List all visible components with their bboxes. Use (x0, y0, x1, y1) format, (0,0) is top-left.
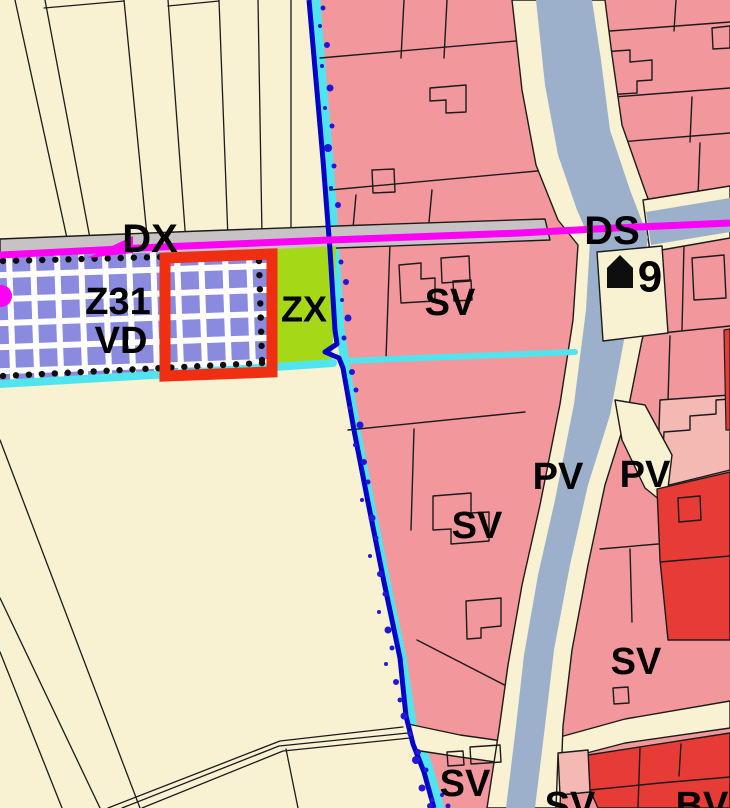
boundary-dot (340, 298, 344, 302)
strip-border-dot (258, 314, 264, 320)
strip-border-dot (52, 370, 58, 376)
strip-border-dot (116, 367, 122, 373)
boundary-dot (323, 106, 327, 110)
strip-border-dot (258, 329, 264, 335)
boundary-dot (349, 369, 355, 375)
map-label-ds: DS (584, 209, 640, 253)
boundary-dot (430, 798, 435, 803)
boundary-dot (385, 627, 392, 634)
boundary-dot (339, 260, 344, 265)
zoning-map[interactable]: DXDSZ31VDZXSV9PVPVSVSVSVSVBV (0, 0, 730, 808)
map-viewport[interactable]: DXDSZ31VDZXSV9PVPVSVSVSVSVBV (0, 0, 730, 808)
map-label-bv: BV (676, 785, 729, 808)
boundary-dot (318, 24, 322, 28)
boundary-dot (390, 646, 395, 651)
strip-border-dot (233, 361, 239, 367)
boundary-dot (383, 592, 388, 597)
map-label-sv: SV (611, 641, 662, 683)
strip-border-dot (142, 366, 148, 372)
boundary-dot (374, 536, 379, 541)
boundary-dot (357, 422, 364, 429)
strip-border-dot (13, 372, 19, 378)
boundary-dot (335, 202, 341, 208)
boundary-dot (384, 662, 388, 666)
strip-border-dot (257, 286, 263, 292)
map-label-sv: SV (452, 505, 503, 547)
boundary-dot (368, 554, 372, 558)
boundary-dot (354, 388, 359, 393)
boundary-dot (361, 459, 367, 465)
strip-border-dot (65, 370, 71, 376)
strip-border-dot (78, 369, 84, 375)
boundary-dot (408, 732, 413, 737)
boundary-dot (324, 42, 330, 48)
boundary-dot (412, 756, 420, 764)
boundary-dot (366, 480, 371, 485)
strip-border-dot (26, 372, 32, 378)
strip-border-dot (26, 257, 32, 263)
strip-border-dot (103, 368, 109, 374)
boundary-dot (342, 336, 347, 341)
strip-border-dot (256, 272, 262, 278)
map-label-sv: SV (545, 785, 596, 808)
strip-border-dot (52, 256, 58, 262)
strip-border-dot (220, 362, 226, 368)
boundary-dot (415, 749, 421, 755)
map-label-zx: ZX (281, 289, 327, 330)
boundary-dot (345, 315, 352, 322)
boundary-dot (320, 64, 324, 68)
boundary-dot (321, 6, 326, 11)
boundary-dot (343, 279, 349, 285)
strip-border-dot (246, 360, 252, 366)
strip-border-dot (207, 362, 213, 368)
strip-border-dot (259, 360, 265, 366)
strip-border-dot (129, 366, 135, 372)
boundary-dot (424, 768, 429, 773)
strip-border-dot (181, 364, 187, 370)
strip-border-dot (39, 371, 45, 377)
strip-border-dot (104, 255, 110, 261)
map-label-pv: PV (533, 456, 584, 498)
boundary-dot (327, 85, 334, 92)
strip-border-dot (257, 300, 263, 306)
boundary-dot (332, 164, 337, 169)
boundary-dot (329, 186, 333, 190)
strip-border-dot (0, 373, 6, 379)
map-label-sv: SV (440, 763, 491, 805)
boundary-dot (353, 443, 357, 447)
map-label-vd: VD (95, 320, 148, 362)
strip-border-dot (194, 363, 200, 369)
boundary-dot (348, 406, 352, 410)
strip-border-dot (13, 257, 19, 263)
strip-border-dot (65, 256, 71, 262)
boundary-dot (398, 698, 403, 703)
strip-border-dot (258, 343, 264, 349)
map-label-sv: SV (425, 282, 476, 324)
boundary-dot (377, 571, 383, 577)
strip-border-dot (78, 256, 84, 262)
map-label-pv: PV (620, 454, 671, 496)
boundary-dot (401, 713, 408, 720)
strip-border-dot (39, 257, 45, 263)
boundary-dot (419, 785, 426, 792)
boundary-dot (377, 610, 381, 614)
boundary-dot (369, 515, 376, 522)
boundary-dot (360, 498, 364, 502)
strip-border-dot (90, 368, 96, 374)
boundary-dot (324, 144, 332, 152)
strip-border-dot (0, 258, 6, 264)
map-label-z31: Z31 (85, 281, 150, 323)
map-label-dx: DX (122, 217, 178, 261)
map-label-9: 9 (638, 253, 662, 302)
boundary-dot (330, 124, 335, 129)
boundary-dot (393, 679, 399, 685)
